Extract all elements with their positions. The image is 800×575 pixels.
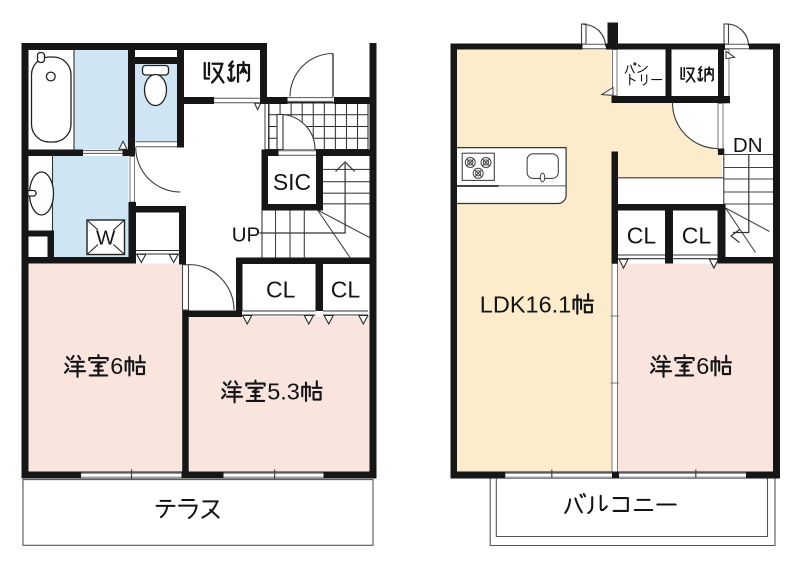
svg-text:LDK16.1: LDK16.1 [480, 292, 571, 318]
svg-text:6: 6 [696, 353, 709, 379]
svg-text:6: 6 [110, 353, 123, 379]
svg-text:SIC: SIC [273, 169, 311, 195]
svg-text:UP: UP [232, 224, 260, 247]
svg-text:DN: DN [733, 134, 763, 157]
svg-text:W: W [96, 227, 116, 250]
svg-text:CL: CL [266, 276, 296, 302]
svg-text:CL: CL [682, 223, 712, 249]
svg-text:CL: CL [627, 223, 657, 249]
svg-text:CL: CL [331, 276, 361, 302]
svg-text:5.3: 5.3 [267, 379, 300, 405]
